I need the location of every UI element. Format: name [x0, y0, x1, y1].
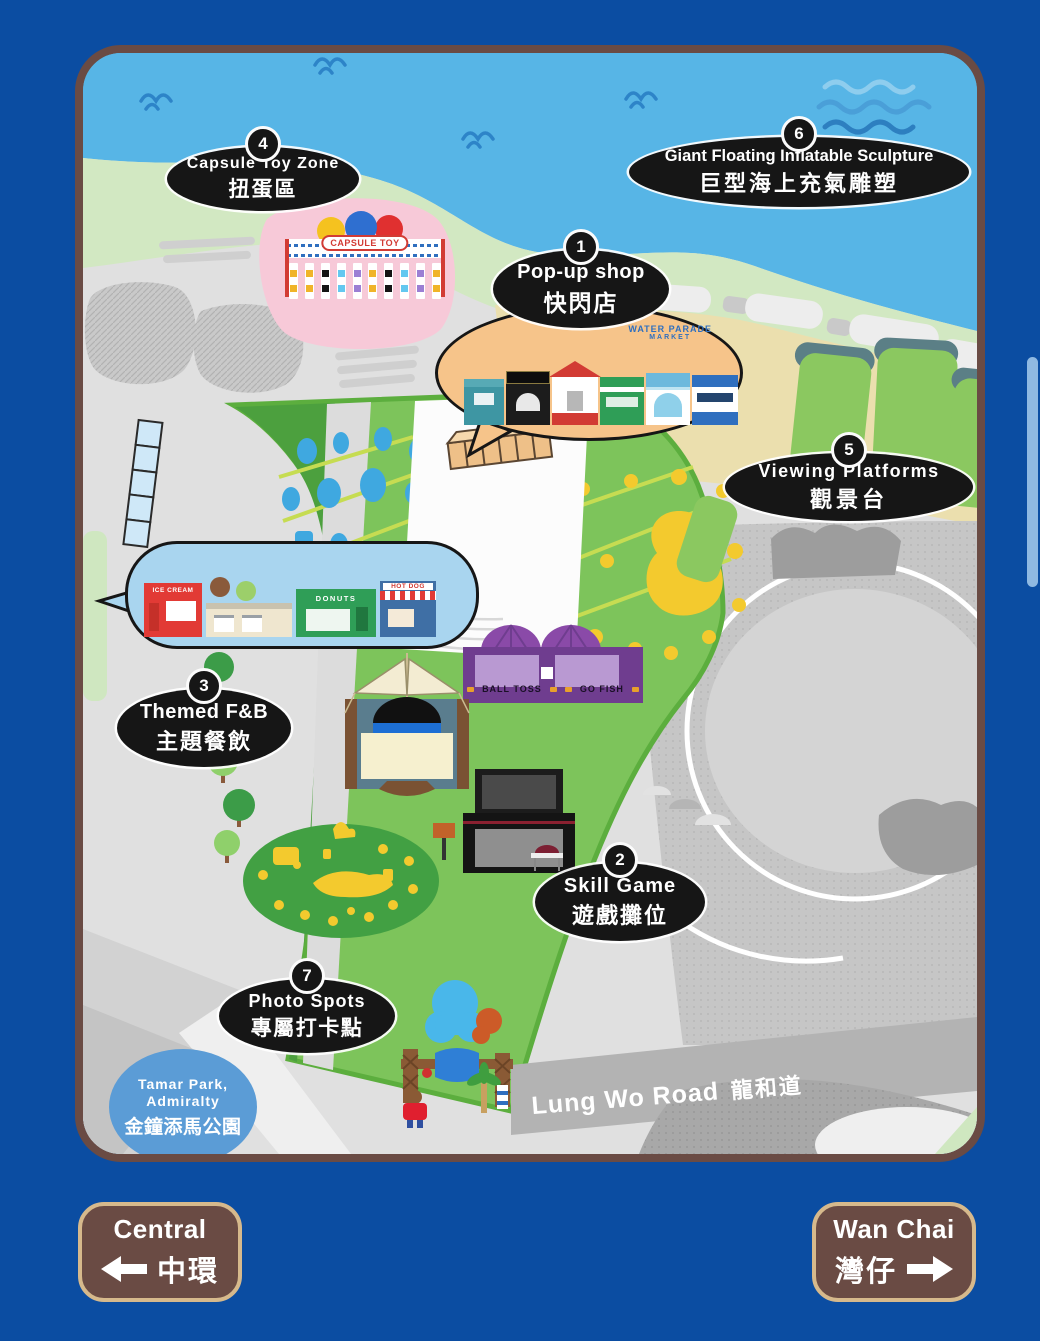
wan-chai-nav-button[interactable]: Wan Chai 灣仔 [812, 1202, 976, 1302]
central-nav-button[interactable]: Central 中環 [78, 1202, 242, 1302]
poi-number-badge: 2 [602, 842, 638, 878]
ice-cream-shop: ICE CREAM [144, 583, 202, 637]
poi-label-viewing-platforms: 5 Viewing Platforms觀景台 [725, 453, 973, 521]
left-green-strip [83, 531, 107, 701]
game-booth-signs: BALL TOSS GO FISH [463, 684, 643, 694]
poi-number-badge: 7 [289, 958, 325, 994]
event-map-page: WATER PARADE MARKET ICE CREAM [0, 0, 1040, 1341]
poi-label-popup-shop: 1 Pop-up shop快閃店 [493, 250, 669, 328]
go-fish-sign: GO FISH [580, 684, 624, 694]
wan-chai-label: Wan Chai [833, 1214, 954, 1245]
capsule-toy-stand: CAPSULE TOY [283, 211, 447, 311]
capsule-machines [289, 263, 441, 299]
food-counter [206, 603, 292, 637]
hot-dog-shop: HOT DOG [380, 581, 436, 637]
shop-black [506, 371, 550, 425]
popup-shops [464, 371, 738, 425]
themed-fnb-bubble: ICE CREAM DONUTS HOT DOG [125, 541, 479, 649]
shop-green [600, 377, 644, 425]
wan-chai-label-zh: 灣仔 [835, 1248, 897, 1290]
donuts-shop: DONUTS [296, 589, 376, 637]
poi-label-capsule-toy-zone: 4 Capsule Toy Zone扭蛋區 [167, 147, 359, 211]
poi-number-badge: 6 [781, 116, 817, 152]
poi-label-skill-game: 2 Skill Game遊戲攤位 [535, 863, 705, 941]
shop-blue [692, 375, 738, 425]
capsule-toy-sign: CAPSULE TOY [321, 235, 408, 251]
water-parade-event-map: WATER PARADE MARKET ICE CREAM [75, 45, 985, 1162]
ball-toss-sign: BALL TOSS [482, 684, 542, 694]
green-tree-icon [236, 581, 256, 601]
scrollbar-thumb[interactable] [1027, 357, 1038, 587]
poi-label-inflatable-sculpture: 6 Giant Floating Inflatable Sculpture巨型海… [629, 137, 969, 207]
brown-tree-icon [210, 577, 230, 597]
tamar-park-badge: Tamar Park, Admiralty 金鐘添馬公園 [109, 1049, 257, 1162]
left-arrow-icon [101, 1256, 147, 1282]
poi-number-badge: 5 [831, 432, 867, 468]
central-label: Central [113, 1214, 206, 1245]
poi-number-badge: 4 [245, 126, 281, 162]
right-arrow-icon [907, 1256, 953, 1282]
poi-label-photo-spots: 7 Photo Spots專屬打卡點 [219, 979, 395, 1053]
shop-lightblue [646, 373, 690, 425]
shop-teal [464, 379, 504, 425]
poi-number-badge: 1 [563, 229, 599, 265]
poi-label-themed-fnb: 3 Themed F&B主題餐飲 [117, 689, 291, 767]
shop-red-house [552, 375, 598, 425]
plaza-dark-top [771, 524, 901, 579]
central-label-zh: 中環 [157, 1248, 219, 1290]
poi-number-badge: 3 [186, 668, 222, 704]
